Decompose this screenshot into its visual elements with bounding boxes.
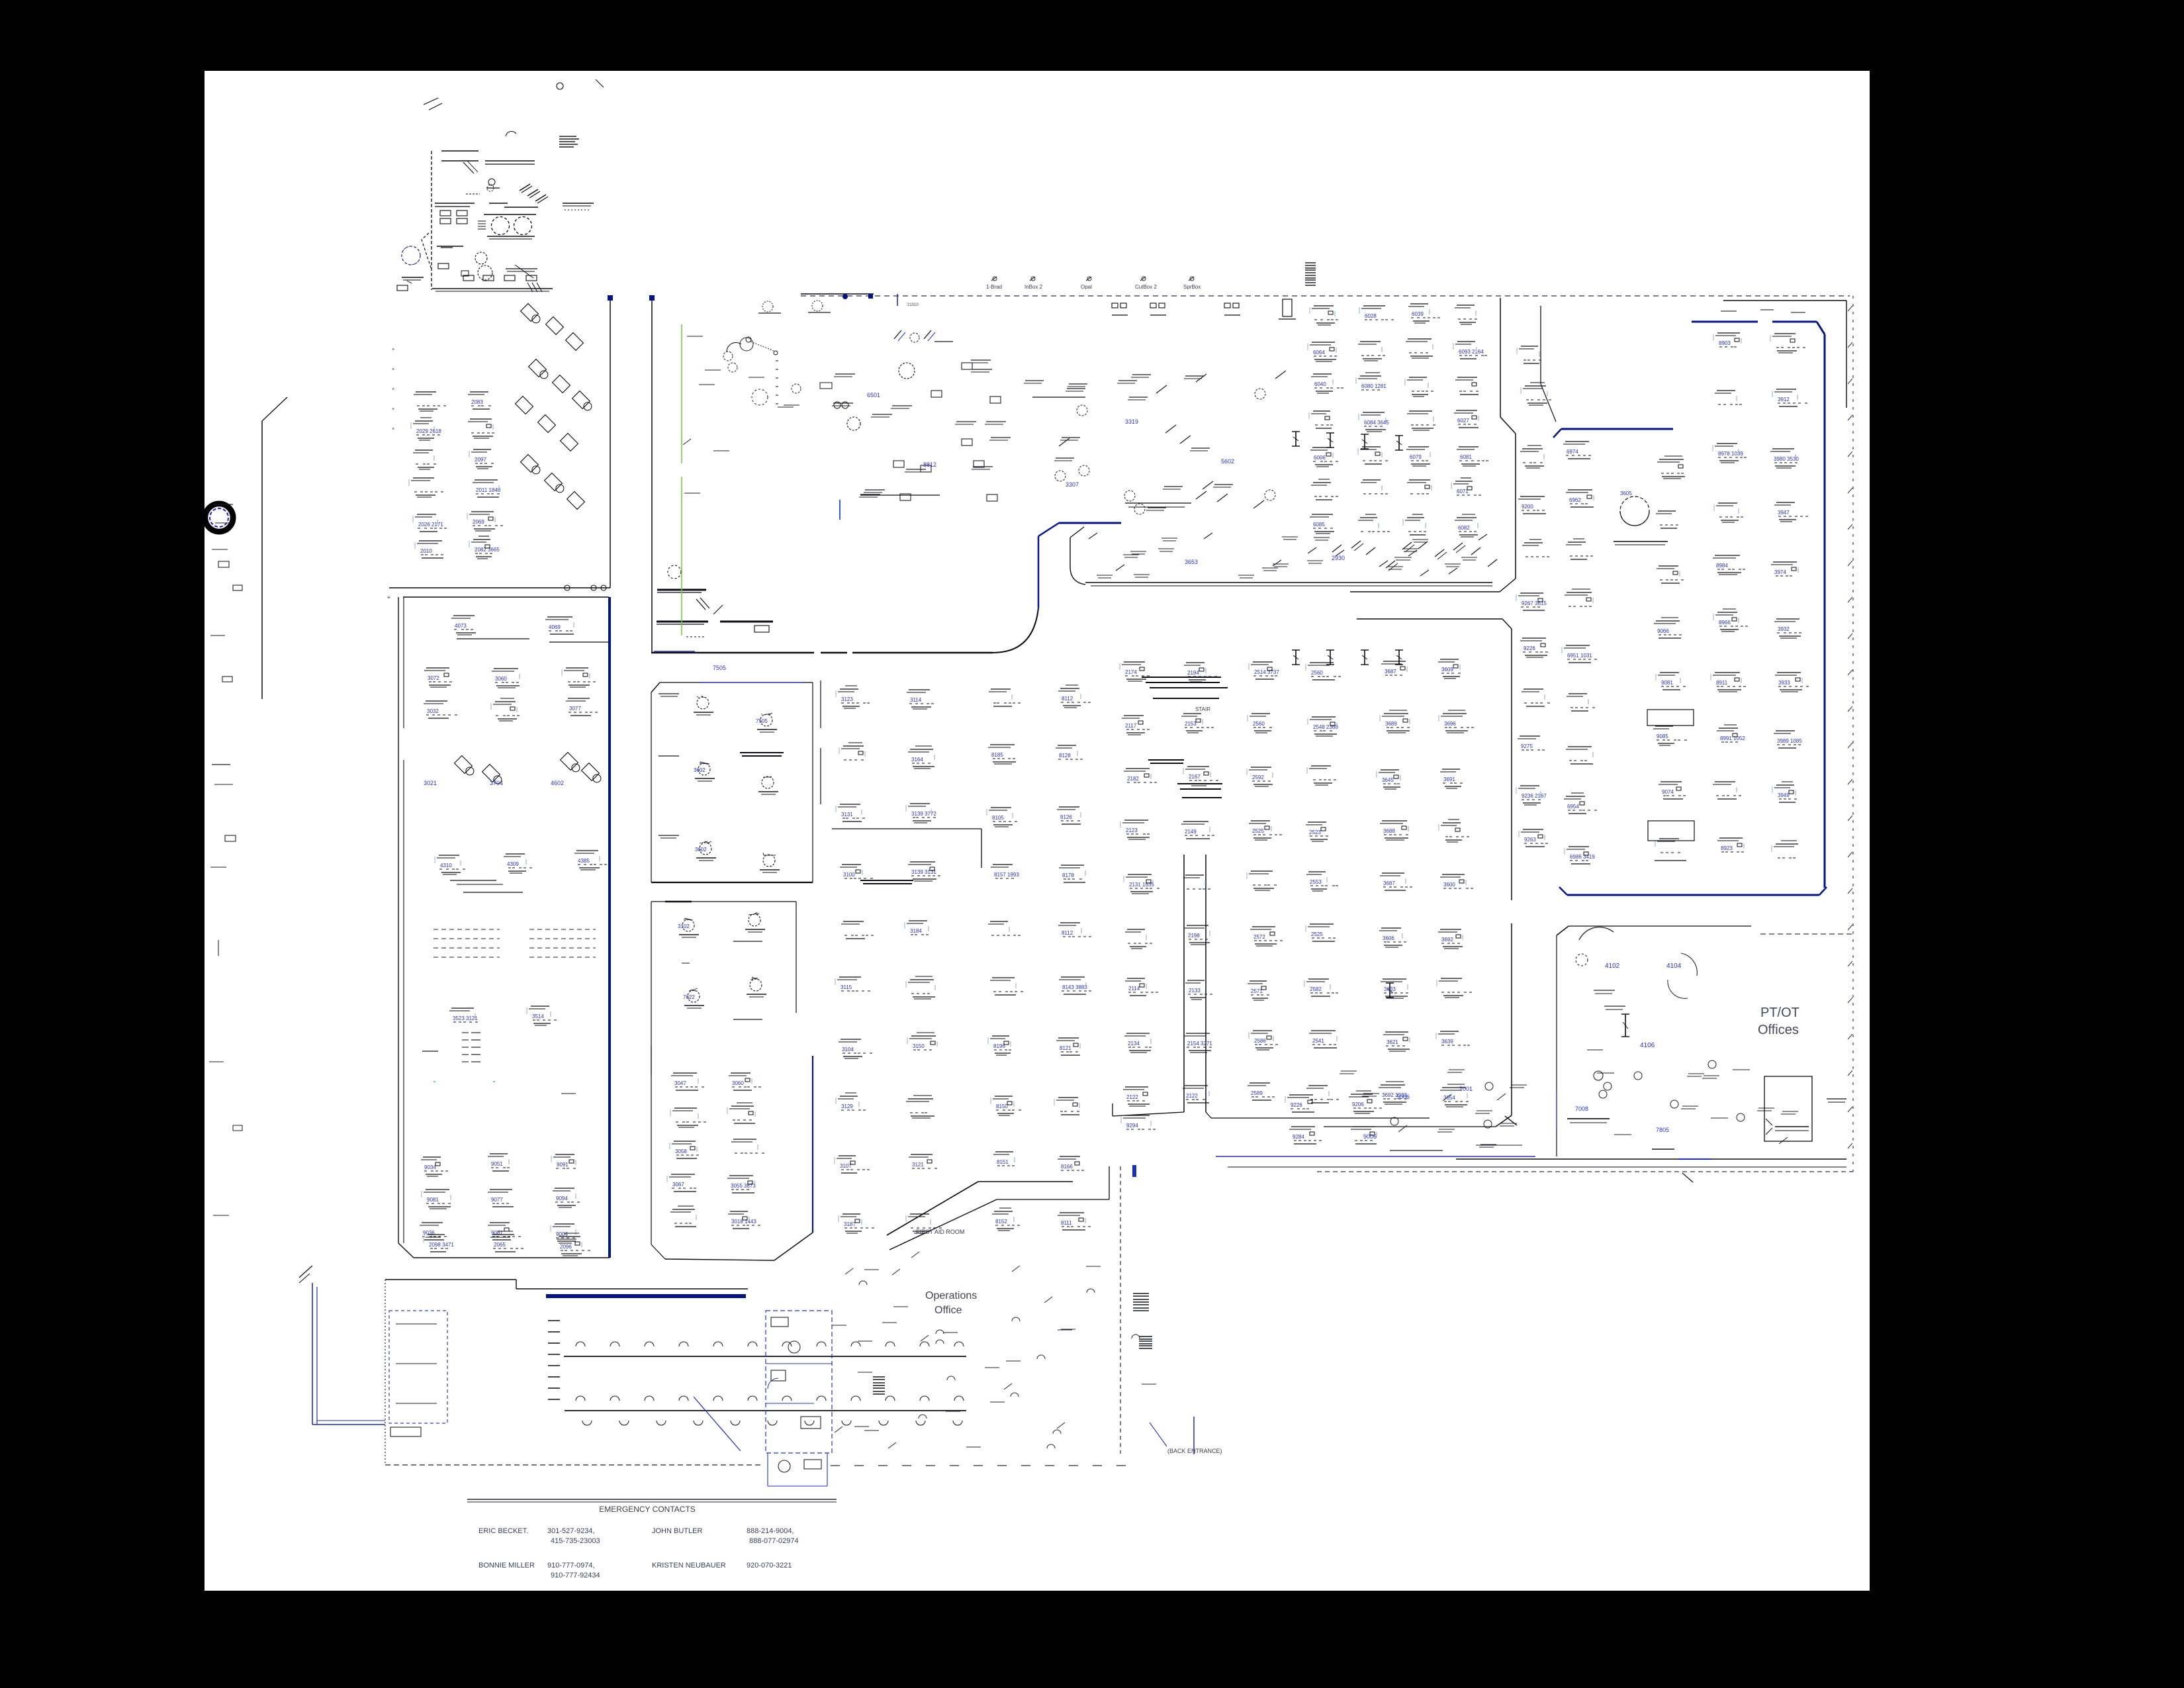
svg-text:3704: 3704 xyxy=(490,780,503,786)
svg-text:2122: 2122 xyxy=(1186,1093,1198,1099)
svg-text:8112: 8112 xyxy=(1062,930,1073,936)
svg-text:4106: 4106 xyxy=(1640,1042,1655,1049)
svg-text:888-077-02974: 888-077-02974 xyxy=(749,1537,799,1545)
svg-text:3989 1085: 3989 1085 xyxy=(1777,738,1802,744)
svg-text:8911: 8911 xyxy=(1716,680,1728,686)
svg-text:9267 3615: 9267 3615 xyxy=(1522,600,1547,606)
svg-text:≡: ≡ xyxy=(387,594,390,600)
svg-text:3164: 3164 xyxy=(911,757,923,763)
svg-text:9226: 9226 xyxy=(1291,1102,1302,1108)
svg-text:3639: 3639 xyxy=(1441,1039,1453,1045)
svg-text:4310: 4310 xyxy=(440,863,452,868)
svg-text:9091: 9091 xyxy=(557,1162,569,1168)
svg-text:8152: 8152 xyxy=(995,1219,1007,1225)
svg-text:910-777-0974,: 910-777-0974, xyxy=(547,1562,595,1570)
svg-text:8923: 8923 xyxy=(1721,845,1733,851)
svg-text:9236 2167: 9236 2167 xyxy=(1522,793,1547,799)
svg-text:KRISTEN NEUBAUER: KRISTEN NEUBAUER xyxy=(652,1562,726,1570)
svg-text:4602: 4602 xyxy=(551,780,564,786)
svg-text:2096: 2096 xyxy=(560,1244,572,1250)
svg-text:9066: 9066 xyxy=(1657,628,1669,634)
svg-text:9081: 9081 xyxy=(427,1197,439,1203)
svg-text:3139 3131: 3139 3131 xyxy=(911,869,936,875)
svg-text:8112: 8112 xyxy=(1062,696,1073,702)
svg-text:4385: 4385 xyxy=(578,858,590,864)
svg-text:2182: 2182 xyxy=(1127,776,1139,782)
svg-text:3523 3121: 3523 3121 xyxy=(453,1015,478,1021)
svg-text:6501: 6501 xyxy=(867,392,880,399)
svg-text:6028: 6028 xyxy=(1365,313,1377,319)
svg-text:8143 3883: 8143 3883 xyxy=(1062,984,1087,990)
svg-text:3307: 3307 xyxy=(1066,481,1079,488)
svg-text:5602: 5602 xyxy=(1221,458,1234,465)
svg-text:8185: 8185 xyxy=(991,752,1003,758)
svg-text:2029 2618: 2029 2618 xyxy=(416,428,441,434)
svg-text:3633: 3633 xyxy=(1384,986,1396,992)
svg-text:9200: 9200 xyxy=(1522,504,1533,510)
svg-text:3187: 3187 xyxy=(844,1221,856,1227)
svg-text:6085: 6085 xyxy=(1313,522,1325,528)
svg-text:2123: 2123 xyxy=(1126,827,1138,833)
svg-text:4102: 4102 xyxy=(1605,962,1620,970)
svg-text:8984: 8984 xyxy=(1716,563,1728,569)
svg-text:4073: 4073 xyxy=(455,623,467,629)
svg-text:×: × xyxy=(392,348,394,352)
svg-text:3645: 3645 xyxy=(1382,777,1394,783)
svg-text:9077: 9077 xyxy=(491,1197,503,1203)
svg-text:3115: 3115 xyxy=(841,984,852,990)
svg-text:3184: 3184 xyxy=(910,928,922,934)
svg-text:3058: 3058 xyxy=(675,1149,687,1154)
svg-text:8978 1039: 8978 1039 xyxy=(1718,451,1743,457)
svg-text:6954: 6954 xyxy=(1567,804,1579,810)
svg-text:Opal: Opal xyxy=(1081,284,1092,290)
svg-text:2560: 2560 xyxy=(1311,670,1323,676)
svg-text:7622: 7622 xyxy=(683,994,695,1000)
svg-text:(BACK ENTRANCE): (BACK ENTRANCE) xyxy=(1167,1448,1222,1454)
svg-text:3018 1443: 3018 1443 xyxy=(731,1219,756,1225)
svg-text:3687: 3687 xyxy=(1383,880,1395,886)
svg-text:3123: 3123 xyxy=(841,696,853,702)
svg-text:9294: 9294 xyxy=(1126,1123,1138,1129)
svg-text:9085: 9085 xyxy=(1657,733,1668,739)
svg-text:2133: 2133 xyxy=(1189,988,1201,994)
svg-text:2174: 2174 xyxy=(1125,669,1137,675)
svg-text:3688: 3688 xyxy=(1383,828,1395,834)
svg-text:2153: 2153 xyxy=(1185,721,1197,727)
svg-text:8903: 8903 xyxy=(1719,340,1731,346)
svg-text:3021: 3021 xyxy=(424,780,437,786)
svg-text:2065: 2065 xyxy=(494,1242,506,1248)
svg-text:3319: 3319 xyxy=(1125,418,1138,425)
svg-text:2117: 2117 xyxy=(1125,723,1137,729)
svg-text:3933: 3933 xyxy=(1778,680,1790,686)
svg-text:Office: Office xyxy=(934,1305,962,1316)
svg-text:2134: 2134 xyxy=(1128,1041,1140,1047)
svg-text:910-777-92434: 910-777-92434 xyxy=(551,1571,600,1579)
svg-text:×: × xyxy=(392,407,394,412)
svg-text:2592: 2592 xyxy=(1252,774,1264,780)
svg-text:7008: 7008 xyxy=(1575,1105,1588,1112)
svg-text:3072: 3072 xyxy=(428,675,439,681)
svg-text:2011 1840: 2011 1840 xyxy=(476,487,501,493)
svg-text:Offices: Offices xyxy=(1758,1023,1799,1037)
svg-text:×: × xyxy=(392,427,394,432)
svg-text:×: × xyxy=(392,367,394,372)
svg-text:8178: 8178 xyxy=(1062,872,1074,878)
svg-text:3621: 3621 xyxy=(1387,1039,1398,1045)
svg-text:SprBox: SprBox xyxy=(1183,284,1201,290)
svg-text:2154 3271: 2154 3271 xyxy=(1187,1041,1212,1047)
svg-text:3077: 3077 xyxy=(569,706,581,712)
svg-text:3696: 3696 xyxy=(1444,721,1456,727)
svg-text:2082 3665: 2082 3665 xyxy=(475,547,500,553)
svg-text:3689: 3689 xyxy=(1385,721,1397,727)
svg-text:2069: 2069 xyxy=(473,519,484,525)
svg-text:4069: 4069 xyxy=(549,624,561,630)
svg-text:2114: 2114 xyxy=(1128,986,1140,992)
svg-text:2541: 2541 xyxy=(1312,1038,1324,1044)
svg-text:2149: 2149 xyxy=(1185,829,1197,835)
svg-text:7805: 7805 xyxy=(1656,1127,1669,1133)
svg-text:4309: 4309 xyxy=(507,861,519,867)
svg-text:2083: 2083 xyxy=(471,399,483,405)
svg-text:9284: 9284 xyxy=(1293,1134,1304,1140)
svg-text:8128: 8128 xyxy=(1059,753,1071,759)
svg-text:8151: 8151 xyxy=(997,1159,1009,1165)
svg-text:8966: 8966 xyxy=(1719,620,1731,626)
svg-text:3605: 3605 xyxy=(1620,491,1632,496)
svg-text:3692: 3692 xyxy=(1441,937,1453,943)
svg-text:6974: 6974 xyxy=(1567,449,1578,455)
svg-text:6039: 6039 xyxy=(1412,311,1424,317)
svg-text:3932: 3932 xyxy=(1778,626,1790,632)
svg-text:3150: 3150 xyxy=(913,1043,925,1049)
svg-text:6064: 6064 xyxy=(1313,350,1325,355)
svg-text:8121: 8121 xyxy=(1060,1045,1071,1051)
svg-text:8812: 8812 xyxy=(923,461,936,468)
svg-text:6081: 6081 xyxy=(1460,454,1472,460)
svg-text:3139 3772: 3139 3772 xyxy=(911,811,936,817)
svg-text:3600: 3600 xyxy=(1443,882,1455,888)
svg-text:3609: 3609 xyxy=(1441,667,1453,673)
svg-text:6027: 6027 xyxy=(1457,418,1469,424)
svg-text:6006: 6006 xyxy=(1314,455,1326,461)
svg-text:3653: 3653 xyxy=(1185,559,1198,565)
svg-text:3060: 3060 xyxy=(732,1080,744,1086)
svg-text:3687: 3687 xyxy=(1385,669,1396,675)
svg-text:6079: 6079 xyxy=(1410,454,1422,460)
svg-text:2930: 2930 xyxy=(1332,555,1345,561)
svg-text:3691: 3691 xyxy=(1443,776,1455,782)
svg-text:5006: 5006 xyxy=(1396,1094,1410,1100)
svg-text:CutBox 2: CutBox 2 xyxy=(1135,284,1157,290)
svg-text:EMERGENCY CONTACTS: EMERGENCY CONTACTS xyxy=(599,1505,696,1514)
svg-text:2560: 2560 xyxy=(1253,721,1265,727)
svg-text:8150: 8150 xyxy=(996,1103,1008,1109)
svg-text:7505: 7505 xyxy=(756,718,768,724)
svg-text:2122: 2122 xyxy=(1126,1094,1138,1100)
svg-text:3067: 3067 xyxy=(672,1182,684,1188)
svg-text:888-214-9004,: 888-214-9004, xyxy=(747,1527,794,1535)
svg-text:9263: 9263 xyxy=(1524,837,1536,843)
svg-text:6951 1031: 6951 1031 xyxy=(1567,653,1592,659)
svg-text:3032: 3032 xyxy=(427,708,439,714)
svg-text:415-735-23003: 415-735-23003 xyxy=(551,1537,600,1545)
svg-text:3602: 3602 xyxy=(694,767,705,773)
svg-text:3104: 3104 xyxy=(842,1047,854,1053)
svg-text:1-Brad: 1-Brad xyxy=(986,284,1002,290)
svg-text:9034: 9034 xyxy=(424,1164,436,1170)
svg-text:PT/OT: PT/OT xyxy=(1760,1006,1799,1020)
svg-text:21010: 21010 xyxy=(907,303,919,307)
svg-text:8157 1993: 8157 1993 xyxy=(994,872,1019,878)
svg-text:7001: 7001 xyxy=(1459,1086,1473,1092)
svg-text:3514: 3514 xyxy=(532,1013,544,1019)
svg-text:3114: 3114 xyxy=(910,697,922,703)
svg-text:2582: 2582 xyxy=(1310,986,1322,992)
svg-text:9081: 9081 xyxy=(1661,680,1673,686)
svg-text:6080 1281: 6080 1281 xyxy=(1361,383,1387,389)
svg-text:2572: 2572 xyxy=(1253,934,1265,940)
svg-text:2525: 2525 xyxy=(1311,931,1323,937)
svg-text:2097: 2097 xyxy=(475,457,486,463)
svg-text:ERIC BECKET.: ERIC BECKET. xyxy=(478,1527,528,1535)
svg-text:6040: 6040 xyxy=(1314,381,1326,387)
svg-text:3974: 3974 xyxy=(1774,569,1786,575)
svg-text:3060: 3060 xyxy=(495,676,507,682)
svg-text:STAIR: STAIR xyxy=(1195,706,1210,712)
svg-text:BONNIE MILLER: BONNIE MILLER xyxy=(478,1562,535,1570)
svg-text:2523: 2523 xyxy=(1309,829,1321,835)
svg-text:301-527-9234,: 301-527-9234, xyxy=(547,1527,595,1535)
svg-text:3606: 3606 xyxy=(1383,935,1394,941)
svg-text:7505: 7505 xyxy=(713,665,726,671)
svg-text:InBox 2: InBox 2 xyxy=(1024,284,1043,290)
svg-text:2194: 2194 xyxy=(1187,670,1199,676)
svg-text:2514 3737: 2514 3737 xyxy=(1254,669,1279,675)
svg-text:3947: 3947 xyxy=(1778,510,1790,516)
svg-text:3949: 3949 xyxy=(1778,792,1790,798)
svg-text:3131: 3131 xyxy=(841,812,853,818)
svg-text:8105: 8105 xyxy=(992,815,1004,821)
svg-text:9206: 9206 xyxy=(1352,1102,1364,1107)
svg-text:8166: 8166 xyxy=(1061,1164,1073,1170)
svg-text:JOHN BUTLER: JOHN BUTLER xyxy=(652,1527,702,1535)
svg-text:2026 2171: 2026 2171 xyxy=(418,522,443,528)
svg-text:2098 3471: 2098 3471 xyxy=(429,1242,454,1248)
svg-text:8111: 8111 xyxy=(1061,1220,1072,1226)
svg-text:6962: 6962 xyxy=(1569,497,1581,503)
svg-text:9074: 9074 xyxy=(1662,789,1674,795)
svg-text:FIRST AID ROOM: FIRST AID ROOM xyxy=(916,1229,964,1235)
svg-text:Operations: Operations xyxy=(925,1290,977,1301)
svg-text:2589: 2589 xyxy=(1251,1090,1263,1096)
svg-text:3047: 3047 xyxy=(674,1080,686,1086)
svg-text:9006: 9006 xyxy=(1363,1133,1377,1140)
svg-text:6986 3419: 6986 3419 xyxy=(1570,854,1595,860)
svg-text:6082: 6082 xyxy=(1458,525,1470,531)
svg-text:920-070-3221: 920-070-3221 xyxy=(747,1562,792,1570)
svg-text:2167: 2167 xyxy=(1189,774,1201,780)
svg-text:9051: 9051 xyxy=(491,1161,503,1167)
svg-text:8126: 8126 xyxy=(1060,814,1072,820)
svg-text:3602: 3602 xyxy=(695,847,707,853)
svg-text:6093 2164: 6093 2164 xyxy=(1459,349,1484,355)
svg-text:2198: 2198 xyxy=(1188,933,1200,939)
svg-text:×: × xyxy=(392,387,394,392)
svg-text:3121: 3121 xyxy=(912,1162,924,1168)
svg-text:9275: 9275 xyxy=(1521,743,1533,749)
svg-text:2553: 2553 xyxy=(1310,879,1322,885)
svg-text:2586: 2586 xyxy=(1254,1038,1266,1044)
svg-text:3912: 3912 xyxy=(1778,397,1790,402)
svg-text:2525: 2525 xyxy=(1252,828,1264,834)
svg-text:3100: 3100 xyxy=(843,872,855,878)
svg-text:4104: 4104 xyxy=(1666,962,1682,970)
svg-text:2010: 2010 xyxy=(420,548,432,554)
svg-text:9226: 9226 xyxy=(1524,645,1535,651)
svg-text:3129: 3129 xyxy=(841,1103,853,1109)
svg-text:9094: 9094 xyxy=(556,1196,568,1201)
svg-text:3102: 3102 xyxy=(678,923,690,929)
